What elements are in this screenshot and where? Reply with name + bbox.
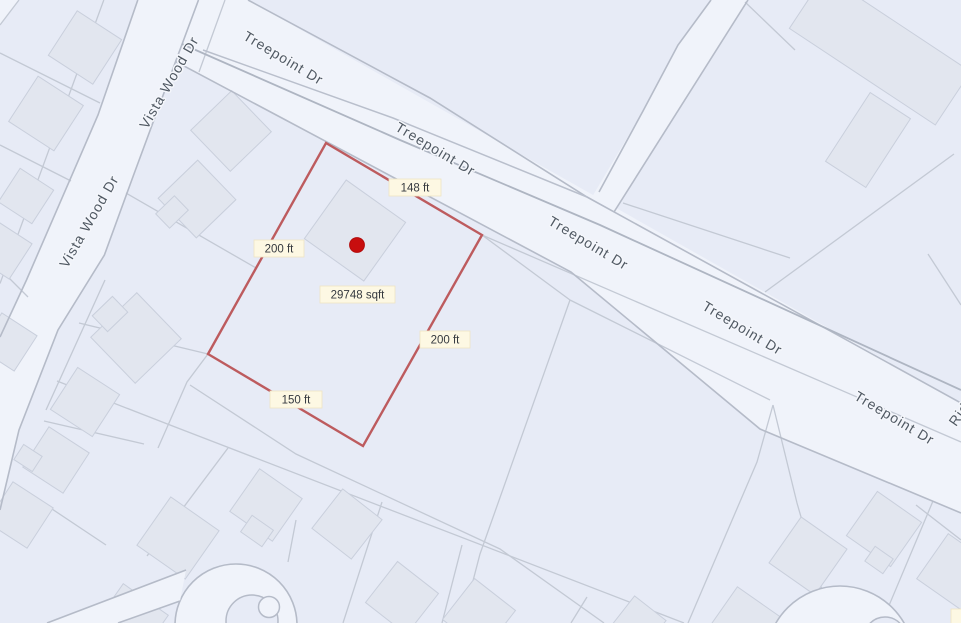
svg-text:200 ft: 200 ft [431, 335, 461, 347]
svg-text:200 ft: 200 ft [265, 244, 295, 256]
svg-text:150 ft: 150 ft [282, 395, 312, 407]
svg-text:148 ft: 148 ft [401, 183, 431, 195]
svg-text:29748 sqft: 29748 sqft [331, 290, 386, 302]
